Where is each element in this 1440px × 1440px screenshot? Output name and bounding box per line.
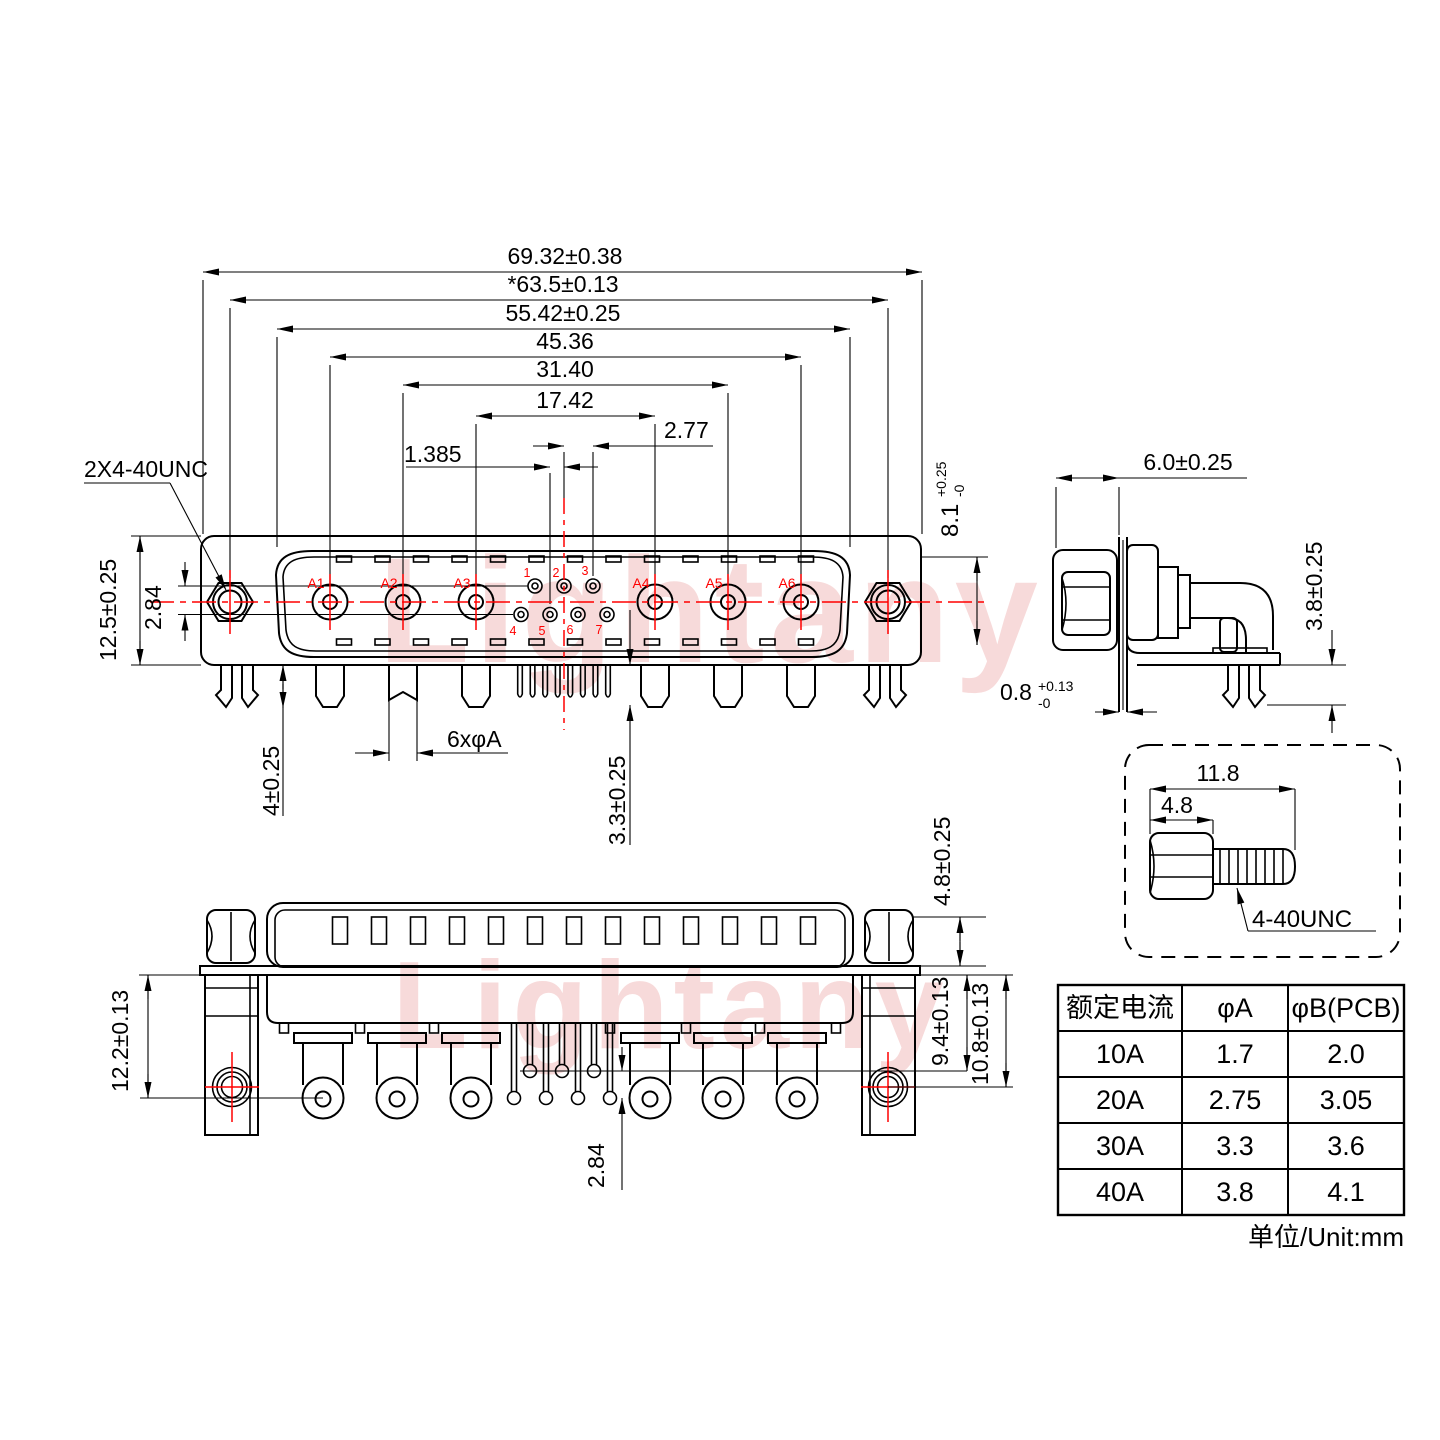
label-pin5: 5: [539, 624, 546, 638]
svg-text:+0.25: +0.25: [933, 461, 949, 497]
svg-text:0.8: 0.8: [1000, 679, 1032, 705]
svg-text:2.75: 2.75: [1209, 1085, 1262, 1115]
dim-screw-length: 11.8: [1196, 760, 1239, 786]
side-view: [1053, 537, 1280, 712]
label-pin1: 1: [524, 566, 531, 580]
dim-pin-row2: 10.8±0.13: [967, 983, 993, 1085]
label-a3: A3: [453, 575, 470, 591]
svg-text:3.8: 3.8: [1216, 1177, 1254, 1207]
spec-table: 额定电流 φA φB(PCB) 10A 1.7 2.0 20A 2.75 3.0…: [1058, 985, 1404, 1252]
screw-detail-dimensions: 11.8 4.8 4-40UNC: [1161, 760, 1352, 933]
svg-text:10A: 10A: [1096, 1039, 1144, 1069]
label-pin2: 2: [553, 566, 560, 580]
dim-pin-length: 3.3±0.25: [604, 756, 630, 845]
bracket-clip: [1223, 665, 1265, 707]
nut-left: [207, 910, 255, 963]
dim-body-height: 12.2±0.13: [107, 990, 133, 1092]
table-row: 30A 3.3 3.6: [1096, 1131, 1365, 1161]
label-pin7: 7: [596, 623, 603, 637]
dim-pin-pitch: 2.77: [664, 417, 709, 443]
dim-screw-head: 4.8: [1161, 792, 1193, 818]
mounting-bracket: [1127, 605, 1280, 665]
dim-clip-length: 4±0.25: [258, 746, 284, 816]
table-header-dia-a: φA: [1217, 993, 1253, 1023]
label-a6: A6: [778, 575, 795, 591]
bent-coax-pin: [1190, 583, 1273, 650]
thread-spec: 4-40UNC: [1252, 906, 1352, 933]
table-header-dia-b: φB(PCB): [1291, 993, 1400, 1023]
label-a2: A2: [380, 575, 397, 591]
thread-lines: [1220, 849, 1283, 884]
side-view-dimensions: 6.0±0.25 3.8±0.25 0.8 +0.13 -0: [1000, 449, 1327, 711]
mount-hole-left: [205, 1052, 259, 1122]
dim-row-offset: 2.84: [140, 585, 166, 630]
svg-text:3.05: 3.05: [1320, 1085, 1373, 1115]
dim-a2-a5: 31.40: [536, 356, 594, 382]
screwlock-note: 2X4-40UNC: [84, 456, 208, 482]
connector-drawing-canvas: Lightany Lightany: [0, 0, 1440, 1440]
svg-text:-0: -0: [951, 484, 967, 497]
drawing-page: Lightany Lightany: [0, 0, 1440, 1440]
label-pin4: 4: [510, 624, 517, 638]
table-header-current: 额定电流: [1066, 993, 1174, 1023]
unit-note: 单位/Unit:mm: [1248, 1222, 1404, 1252]
dim-shroud-width: 55.42±0.25: [506, 300, 621, 326]
board-clip-left: [216, 665, 258, 707]
dim-mount-span: *63.5±0.13: [507, 271, 618, 297]
table-row: 20A 2.75 3.05: [1096, 1085, 1372, 1115]
table-row: 40A 3.8 4.1: [1096, 1177, 1365, 1207]
thumbscrew-head: [1150, 833, 1213, 899]
dim-pin-diameter: 6xφA: [447, 726, 502, 752]
dim-flange-height: 12.5±0.25: [95, 559, 121, 661]
label-a4: A4: [632, 575, 649, 591]
svg-text:40A: 40A: [1096, 1177, 1144, 1207]
label-pin6: 6: [567, 623, 574, 637]
dim-nut-height: 4.8±0.25: [929, 817, 955, 906]
svg-text:3.3: 3.3: [1216, 1131, 1254, 1161]
dim-pin-row1: 9.4±0.13: [927, 977, 953, 1066]
svg-text:1.7: 1.7: [1216, 1039, 1254, 1069]
svg-text:20A: 20A: [1096, 1085, 1144, 1115]
dim-shell-depth: 8.1 +0.25 -0: [933, 461, 967, 537]
svg-text:30A: 30A: [1096, 1131, 1144, 1161]
label-a5: A5: [705, 575, 722, 591]
label-a1: A1: [307, 575, 324, 591]
svg-text:4.1: 4.1: [1327, 1177, 1365, 1207]
svg-text:8.1: 8.1: [937, 504, 964, 537]
table-row: 10A 1.7 2.0: [1096, 1039, 1365, 1069]
dim-bracket-height: 3.8±0.25: [1301, 542, 1327, 631]
dim-overall-width: 69.32±0.38: [508, 243, 623, 269]
dim-row-offset-bottom: 2.84: [583, 1143, 609, 1188]
svg-text:-0: -0: [1038, 695, 1051, 711]
dim-mating-depth: 6.0±0.25: [1143, 449, 1232, 475]
dim-half-pitch: 1.385: [404, 441, 462, 467]
svg-text:2.0: 2.0: [1327, 1039, 1365, 1069]
dim-a3-a4: 17.42: [536, 387, 594, 413]
label-pin3: 3: [582, 564, 589, 578]
svg-text:+0.13: +0.13: [1038, 678, 1074, 694]
svg-text:3.6: 3.6: [1327, 1131, 1365, 1161]
dim-a1-a6: 45.36: [536, 328, 594, 354]
